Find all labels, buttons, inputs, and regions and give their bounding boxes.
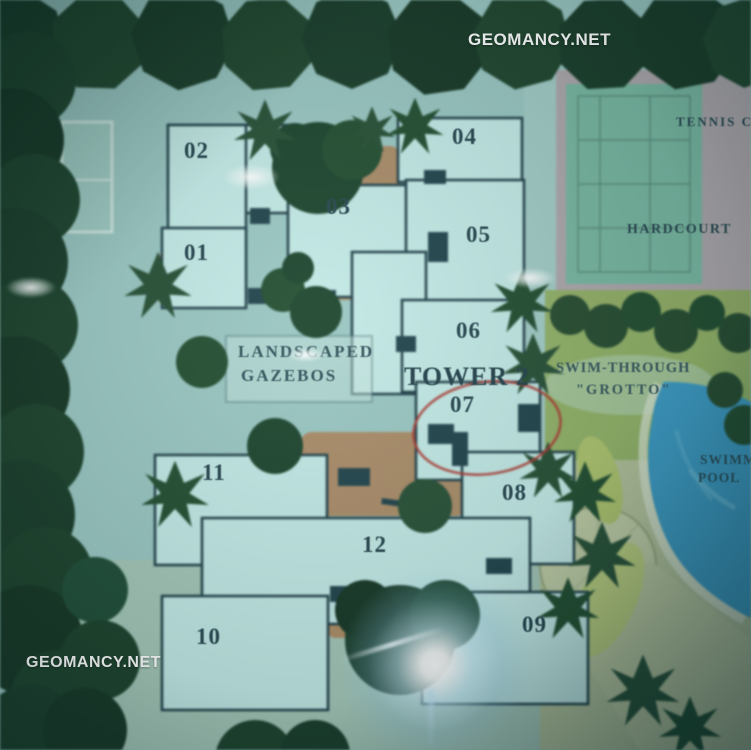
unit-label-10: 10 [196, 624, 221, 650]
pool-label-line1: SWIMMING [700, 452, 751, 468]
tennis-court-label: TENNIS COURT [676, 114, 751, 130]
swim-through-label: SWIM-THROUGH [556, 360, 690, 377]
glare-spot [6, 277, 56, 298]
unit-label-05: 05 [466, 222, 491, 248]
unit-label-12: 12 [362, 532, 387, 558]
glare-spot [222, 164, 280, 190]
hardcourt-label: HARDCOURT [627, 222, 732, 238]
unit-label-03: 03 [326, 194, 351, 220]
watermark-bottom: GEOMANCY.NET [26, 654, 161, 672]
unit-label-08: 08 [502, 480, 527, 506]
watermark-top: GEOMANCY.NET [468, 30, 611, 50]
glare-spot [504, 268, 556, 288]
unit-label-06: 06 [456, 318, 481, 344]
glare-spot [287, 348, 325, 362]
gazebos-label-line2: GAZEBOS [241, 366, 337, 386]
unit-label-02: 02 [184, 138, 209, 164]
flash-streak [428, 690, 434, 750]
site-plan-photo: 01 02 03 04 05 06 07 08 09 10 11 12 TOWE… [0, 0, 751, 750]
unit-label-04: 04 [452, 124, 477, 150]
tower-2-label: TOWER 2 [404, 362, 530, 392]
unit-label-01: 01 [184, 240, 209, 266]
grotto-label: "GROTTO" [576, 382, 672, 399]
unit-label-11: 11 [202, 460, 226, 486]
unit-label-07: 07 [450, 392, 475, 418]
camera-flash-glare [340, 570, 530, 750]
pool-label-line2: POOL [698, 470, 740, 486]
